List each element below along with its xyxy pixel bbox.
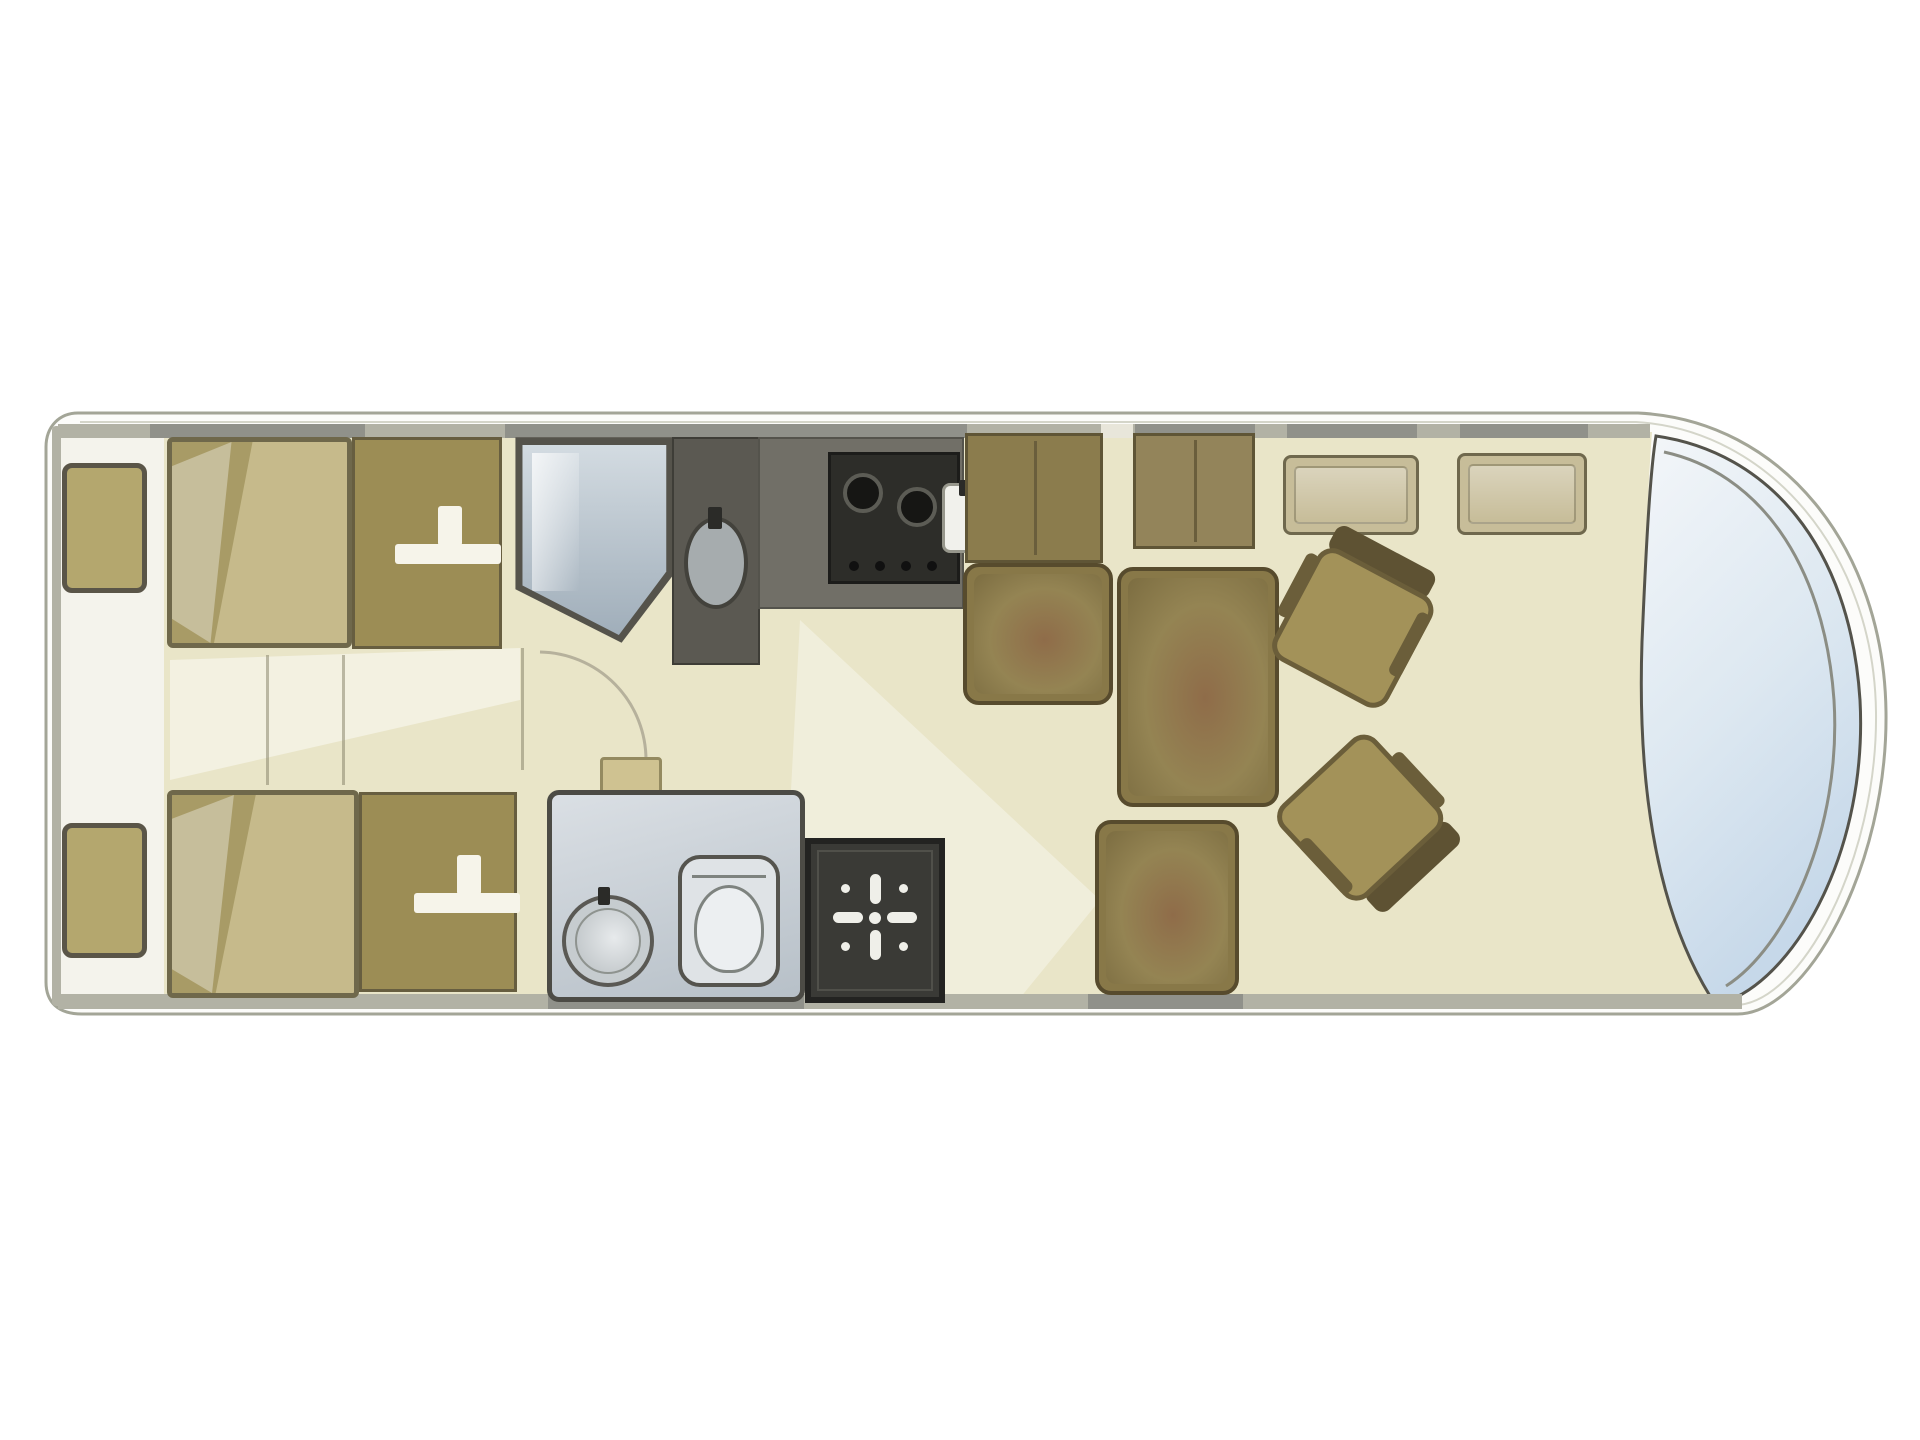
seat-cushion <box>1106 831 1228 984</box>
table-top <box>1128 578 1268 796</box>
vehicle-body-layer <box>0 0 1920 1440</box>
drain-rose-icon <box>870 874 881 904</box>
hob-knob <box>875 561 885 571</box>
bed-fold-highlight <box>172 795 354 993</box>
wardrobe-top <box>352 437 502 649</box>
vanity-basin <box>684 517 748 609</box>
locker-door <box>1468 464 1576 524</box>
toilet-lid-line <box>692 875 766 878</box>
washroom <box>547 790 805 1002</box>
bed-fold-highlight <box>172 442 347 643</box>
window-midships-top <box>505 424 967 438</box>
overhead-locker-1 <box>1283 455 1419 535</box>
window-cab-top-1 <box>1287 424 1417 438</box>
floor-joint-2 <box>342 655 345 785</box>
drain-rose-dot <box>899 884 908 893</box>
hanger-hook <box>457 855 481 895</box>
hob <box>828 452 960 584</box>
drain-rose-dot <box>841 884 850 893</box>
hanger-bar <box>395 544 501 564</box>
front-bench-seat <box>1095 820 1239 995</box>
drain-rose-dot <box>899 942 908 951</box>
drain-rose-dot <box>841 942 850 951</box>
single-bed-top <box>167 437 352 648</box>
vanity-unit <box>672 437 760 665</box>
toilet-bowl <box>694 885 764 973</box>
side-bench-seat <box>963 563 1113 705</box>
rear-wall <box>52 426 61 1006</box>
lounge-cabinet <box>1133 433 1255 549</box>
bedside-cabinet-top <box>62 463 147 593</box>
shower-tray <box>805 838 945 1003</box>
hanger-hook <box>438 506 462 546</box>
washbasin-bowl <box>575 908 641 974</box>
seat-cushion <box>974 574 1102 694</box>
window-cab-top-2 <box>1460 424 1588 438</box>
drain-rose-icon <box>870 930 881 960</box>
hob-knob <box>849 561 859 571</box>
entry-door-gap <box>1101 424 1133 438</box>
drain-rose-icon <box>833 912 863 923</box>
window-lounge-bottom <box>1088 994 1243 1009</box>
lounge-table <box>1117 567 1279 807</box>
window-rear-bed-top <box>150 424 365 438</box>
locker-door <box>1294 466 1408 524</box>
floorplan-canvas <box>0 0 1920 1440</box>
hob-knob <box>927 561 937 571</box>
motorhome-floorplan <box>0 0 1920 1440</box>
hanger-icon <box>395 506 501 564</box>
floor-joint-1 <box>266 655 269 785</box>
floor-joint-3 <box>521 648 524 770</box>
glass-gleam <box>532 453 579 592</box>
cabinet-divider <box>1034 441 1037 555</box>
hob-knob <box>901 561 911 571</box>
hanger-icon <box>414 855 520 913</box>
vanity-tap <box>708 507 722 529</box>
tall-cabinet <box>965 433 1103 563</box>
single-bed-bottom <box>167 790 359 998</box>
basin-tap <box>598 887 610 905</box>
drain-rose-center <box>869 912 881 924</box>
hanger-bar <box>414 893 520 913</box>
drain-rose-icon <box>887 912 917 923</box>
burner-icon <box>897 487 937 527</box>
toilet <box>678 855 780 987</box>
cabinet-divider <box>1194 440 1197 541</box>
washbasin <box>562 895 654 987</box>
burner-icon <box>843 473 883 513</box>
kitchen-worktop <box>758 437 964 609</box>
bedside-cabinet-bottom <box>62 823 147 958</box>
wardrobe-bottom <box>359 792 517 992</box>
overhead-locker-2 <box>1457 453 1587 535</box>
